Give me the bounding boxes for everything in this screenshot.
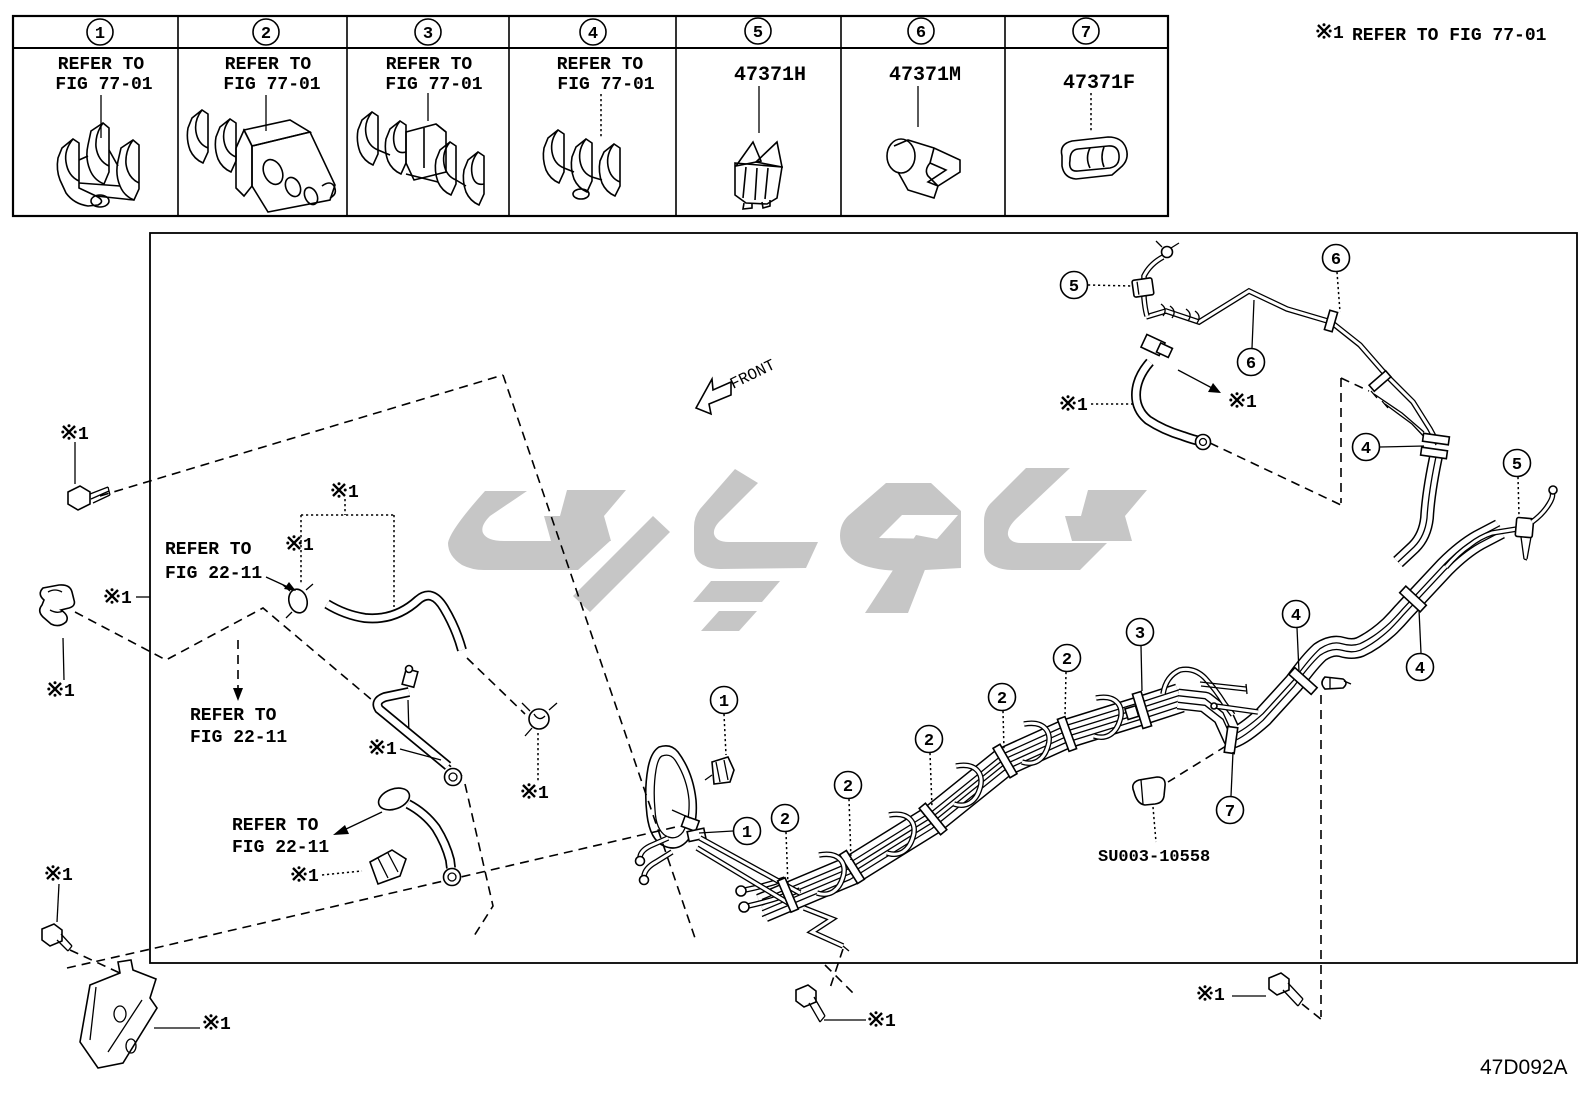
svg-text:REFER TO: REFER TO <box>225 55 312 75</box>
svg-text:REFER TO FIG 77-01: REFER TO FIG 77-01 <box>1352 26 1547 46</box>
svg-text:7: 7 <box>1081 24 1091 43</box>
svg-text:FRONT: FRONT <box>727 356 778 393</box>
svg-text:4: 4 <box>588 25 598 44</box>
svg-text:2: 2 <box>261 25 271 44</box>
svg-text:REFER TO: REFER TO <box>557 55 644 75</box>
svg-text:6: 6 <box>1331 251 1341 270</box>
svg-text:REFER TO: REFER TO <box>386 55 473 75</box>
svg-text:7: 7 <box>1225 803 1235 822</box>
svg-text:REFER TO: REFER TO <box>165 540 252 560</box>
svg-text:47371M: 47371M <box>889 64 961 87</box>
svg-text:47371F: 47371F <box>1063 72 1135 95</box>
svg-text:1: 1 <box>95 25 105 44</box>
svg-text:REFER TO: REFER TO <box>190 706 277 726</box>
svg-text:REFER TO: REFER TO <box>58 55 145 75</box>
svg-text:FIG 22-11: FIG 22-11 <box>232 838 329 858</box>
svg-text:FIG 77-01: FIG 77-01 <box>557 75 654 95</box>
svg-text:5: 5 <box>1512 456 1522 475</box>
svg-text:4: 4 <box>1415 660 1425 679</box>
svg-text:FIG 22-11: FIG 22-11 <box>165 564 262 584</box>
svg-text:FIG 77-01: FIG 77-01 <box>385 75 482 95</box>
svg-text:REFER TO: REFER TO <box>232 816 319 836</box>
svg-text:4: 4 <box>1361 440 1371 459</box>
svg-text:3: 3 <box>1135 625 1145 644</box>
svg-text:2: 2 <box>924 732 934 751</box>
svg-text:2: 2 <box>1062 651 1072 670</box>
svg-text:FIG 77-01: FIG 77-01 <box>55 75 152 95</box>
svg-text:2: 2 <box>780 811 790 830</box>
svg-text:5: 5 <box>753 24 763 43</box>
svg-text:6: 6 <box>1246 355 1256 374</box>
svg-text:1: 1 <box>719 693 729 712</box>
svg-text:2: 2 <box>843 778 853 797</box>
svg-text:47371H: 47371H <box>734 64 806 87</box>
svg-text:3: 3 <box>423 25 433 44</box>
svg-text:4: 4 <box>1291 607 1301 626</box>
svg-text:47D092A: 47D092A <box>1480 1056 1568 1079</box>
svg-text:SU003-10558: SU003-10558 <box>1098 848 1210 867</box>
svg-text:FIG 77-01: FIG 77-01 <box>223 75 320 95</box>
svg-text:6: 6 <box>916 24 926 43</box>
svg-text:1: 1 <box>742 824 752 843</box>
svg-text:5: 5 <box>1069 278 1079 297</box>
svg-text:FIG 22-11: FIG 22-11 <box>190 728 287 748</box>
svg-text:2: 2 <box>997 690 1007 709</box>
